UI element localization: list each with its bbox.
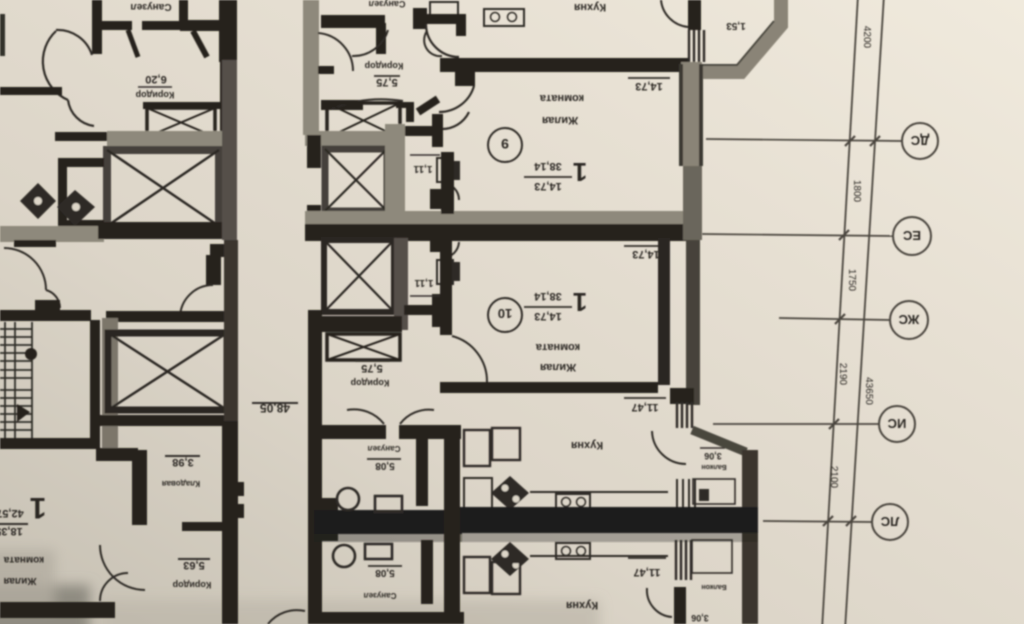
svg-text:Жилая: Жилая xyxy=(540,361,577,373)
svg-text:комната: комната xyxy=(539,92,584,104)
svg-text:ИС: ИС xyxy=(887,416,906,431)
svg-text:Коридор: Коридор xyxy=(364,61,403,71)
svg-text:4200: 4200 xyxy=(861,26,872,49)
svg-text:Балкон: Балкон xyxy=(701,463,726,470)
svg-text:38,14: 38,14 xyxy=(533,290,561,302)
svg-text:3,06: 3,06 xyxy=(691,613,709,623)
svg-text:ЛС: ЛС xyxy=(880,514,899,529)
svg-text:Жилая: Жилая xyxy=(3,575,37,586)
svg-text:комната: комната xyxy=(535,341,580,353)
svg-text:Санузел: Санузел xyxy=(368,0,405,9)
svg-text:3,98: 3,98 xyxy=(172,456,193,468)
svg-text:Коридор: Коридор xyxy=(135,90,174,100)
svg-text:1,11: 1,11 xyxy=(413,163,432,174)
svg-text:5,63: 5,63 xyxy=(183,559,204,571)
svg-text:Кухня: Кухня xyxy=(566,599,598,611)
svg-text:1800: 1800 xyxy=(851,180,862,203)
svg-text:14,73: 14,73 xyxy=(534,310,562,322)
svg-text:11,47: 11,47 xyxy=(634,566,661,578)
svg-text:Жилая: Жилая xyxy=(542,114,579,126)
svg-text:42,57: 42,57 xyxy=(0,507,24,519)
svg-text:1,53: 1,53 xyxy=(726,20,746,31)
svg-text:5,75: 5,75 xyxy=(376,76,397,88)
svg-text:Кладовая: Кладовая xyxy=(162,479,201,488)
svg-text:9: 9 xyxy=(501,136,509,152)
svg-text:48,05: 48,05 xyxy=(260,401,290,415)
svg-text:38,14: 38,14 xyxy=(533,160,561,172)
svg-text:1,11: 1,11 xyxy=(414,277,433,288)
svg-text:Кухня: Кухня xyxy=(574,1,606,13)
svg-text:14,73: 14,73 xyxy=(534,180,562,192)
svg-text:5,08: 5,08 xyxy=(375,460,395,471)
svg-text:1: 1 xyxy=(573,287,587,317)
svg-text:11,47: 11,47 xyxy=(632,401,659,413)
svg-text:ЖС: ЖС xyxy=(898,312,920,327)
svg-text:комната: комната xyxy=(3,554,44,565)
svg-text:5,75: 5,75 xyxy=(361,362,382,374)
svg-text:2100: 2100 xyxy=(828,466,839,489)
svg-text:Санузел: Санузел xyxy=(364,591,397,600)
svg-text:3,06: 3,06 xyxy=(704,451,722,461)
svg-text:14,73: 14,73 xyxy=(635,80,663,92)
svg-text:Кухня: Кухня xyxy=(571,439,603,451)
svg-text:10: 10 xyxy=(498,306,512,321)
svg-text:2190: 2190 xyxy=(837,363,848,386)
svg-text:Санузел: Санузел xyxy=(368,444,401,453)
svg-text:Коридор: Коридор xyxy=(172,580,211,590)
svg-text:ДС: ДС xyxy=(910,133,929,148)
svg-text:5,08: 5,08 xyxy=(375,567,395,578)
svg-text:43650: 43650 xyxy=(863,377,874,405)
svg-text:14,73: 14,73 xyxy=(632,248,660,260)
svg-text:1: 1 xyxy=(30,491,47,524)
svg-text:ЕС: ЕС xyxy=(902,228,921,243)
svg-text:1750: 1750 xyxy=(846,269,857,292)
svg-text:Коридор: Коридор xyxy=(350,378,389,388)
svg-text:18,35: 18,35 xyxy=(0,525,23,537)
svg-text:1: 1 xyxy=(573,157,587,187)
svg-text:Санузел: Санузел xyxy=(130,1,171,12)
svg-text:Балкон: Балкон xyxy=(701,583,726,590)
svg-text:6,20: 6,20 xyxy=(145,73,166,85)
